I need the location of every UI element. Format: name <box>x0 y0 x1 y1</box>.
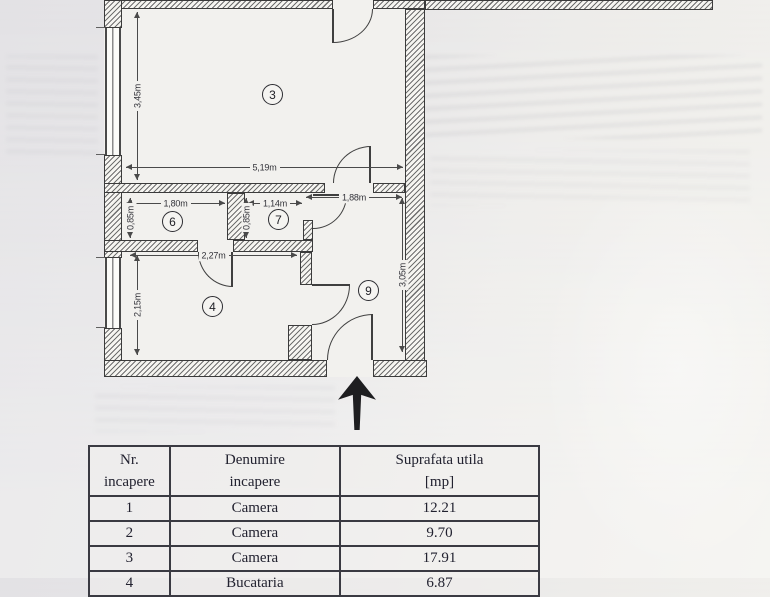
room-areas-table: Nr. incapere Denumire incapere Suprafata… <box>88 445 540 597</box>
window-sill-tick <box>96 154 105 155</box>
door-leaf <box>312 284 350 286</box>
dimension-hall-height: 3,05m <box>402 198 403 352</box>
cell-suprafata: 9.70 <box>340 521 539 546</box>
table-header-suprafata: Suprafata utila [mp] <box>340 446 539 496</box>
wall-room4-top-right <box>233 240 313 252</box>
window-sill-tick <box>96 327 105 328</box>
dimension-label: 1,14m <box>260 198 290 209</box>
dimension-label: 3,45m <box>133 81 144 111</box>
door-leaf <box>369 146 371 183</box>
dimension-room7-width: 1,14m <box>248 203 302 204</box>
dimension-label: 5,19m <box>249 162 279 173</box>
dimension-room6-height: 0,85m <box>130 198 131 238</box>
cell-suprafata: 6.87 <box>340 571 539 596</box>
dimension-room3-height: 3,45m <box>137 12 138 180</box>
door-leaf <box>231 252 233 287</box>
wall-room4-top-left <box>104 240 198 252</box>
header-line: Nr. <box>90 449 169 472</box>
door-leaf <box>371 314 373 360</box>
dimension-label: 2,15m <box>133 290 144 320</box>
table-row: 4 Bucataria 6.87 <box>89 571 539 596</box>
dimension-label: 0,85m <box>242 203 253 233</box>
cell-denumire: Camera <box>170 496 340 521</box>
wall-bottom-left <box>104 360 327 377</box>
floor-plan: 5,19m 3,45m 1,80m 0,85m 1,14m 0,85m 1,88… <box>0 0 770 440</box>
wall-top-left <box>104 0 333 9</box>
scanned-document-page: 5,19m 3,45m 1,80m 0,85m 1,14m 0,85m 1,88… <box>0 0 770 578</box>
header-line: Denumire <box>171 449 339 472</box>
header-line: [mp] <box>341 471 538 494</box>
cell-denumire: Camera <box>170 521 340 546</box>
cell-nr: 4 <box>89 571 170 596</box>
dimension-label: 1,88m <box>339 192 369 203</box>
wall-top-right <box>373 0 425 9</box>
header-line: incapere <box>90 471 169 494</box>
wall-right <box>405 9 425 377</box>
table-header-nr: Nr. incapere <box>89 446 170 496</box>
room-label-7: 7 <box>268 209 289 230</box>
dimension-label: 2,27m <box>198 250 228 261</box>
table-row: 3 Camera 17.91 <box>89 546 539 571</box>
wall-room4-hall-divider <box>300 252 312 285</box>
table-row: 1 Camera 12.21 <box>89 496 539 521</box>
dimension-label: 0,85m <box>126 203 137 233</box>
cell-nr: 1 <box>89 496 170 521</box>
wall-room7-right-block <box>303 220 313 240</box>
wall-room3-bottom-right <box>373 183 405 193</box>
dimension-room3-width: 5,19m <box>126 167 403 168</box>
room-label-9: 9 <box>358 280 379 301</box>
window-sill-tick <box>96 27 105 28</box>
dimension-hall-width: 1,88m <box>306 197 402 198</box>
cell-denumire: Camera <box>170 546 340 571</box>
table-row: 2 Camera 9.70 <box>89 521 539 546</box>
room-label-4: 4 <box>202 296 223 317</box>
room-label-6: 6 <box>162 211 183 232</box>
dimension-room6-width: 1,80m <box>126 203 225 204</box>
dimension-room7-height: 0,85m <box>246 198 247 238</box>
dimension-label: 3,05m <box>398 260 409 290</box>
door-leaf <box>332 9 334 43</box>
cell-suprafata: 12.21 <box>340 496 539 521</box>
cell-nr: 2 <box>89 521 170 546</box>
entrance-arrow <box>338 376 376 430</box>
dimension-label: 1,80m <box>160 198 190 209</box>
wall-bottom-right <box>373 360 427 377</box>
window-room3 <box>105 28 121 155</box>
dimension-room4-width: 2,27m <box>130 255 297 256</box>
wall-left-top <box>104 0 122 28</box>
header-line: incapere <box>171 471 339 494</box>
wall-top-extension <box>425 0 713 10</box>
wall-hall-step-block <box>288 325 312 360</box>
table-header-denumire: Denumire incapere <box>170 446 340 496</box>
dimension-room4-height: 2,15m <box>137 255 138 355</box>
window-room4 <box>105 258 121 328</box>
window-sill-tick <box>96 257 105 258</box>
cell-suprafata: 17.91 <box>340 546 539 571</box>
header-line: Suprafata utila <box>341 449 538 472</box>
room-label-3: 3 <box>262 84 283 105</box>
cell-denumire: Bucataria <box>170 571 340 596</box>
wall-room3-bottom-left <box>104 183 325 193</box>
table-header-row: Nr. incapere Denumire incapere Suprafata… <box>89 446 539 496</box>
cell-nr: 3 <box>89 546 170 571</box>
